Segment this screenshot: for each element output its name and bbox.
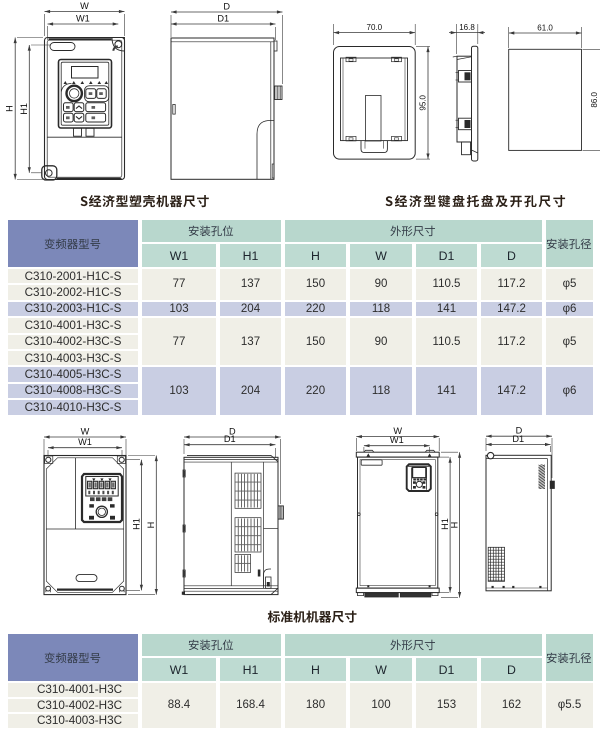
svg-text:W1: W1 — [76, 14, 90, 24]
svg-text:16.8: 16.8 — [459, 23, 475, 32]
svg-text:W1: W1 — [390, 435, 404, 445]
svg-text:95.0: 95.0 — [419, 94, 428, 110]
svg-text:H: H — [5, 105, 15, 112]
svg-text:D1: D1 — [217, 14, 229, 24]
svg-text:W1: W1 — [78, 437, 92, 447]
svg-text:H1: H1 — [19, 103, 29, 115]
svg-text:70.0: 70.0 — [367, 23, 383, 32]
svg-text:H: H — [450, 522, 460, 529]
svg-text:W: W — [80, 1, 89, 11]
svg-text:H: H — [146, 522, 156, 529]
svg-text:H1: H1 — [440, 518, 450, 530]
svg-text:86.0: 86.0 — [590, 91, 599, 107]
svg-text:61.0: 61.0 — [537, 24, 553, 33]
svg-text:D1: D1 — [512, 434, 524, 444]
svg-text:D: D — [223, 2, 230, 12]
svg-text:H1: H1 — [131, 518, 141, 530]
svg-text:W: W — [81, 427, 90, 437]
svg-text:D1: D1 — [224, 434, 236, 444]
